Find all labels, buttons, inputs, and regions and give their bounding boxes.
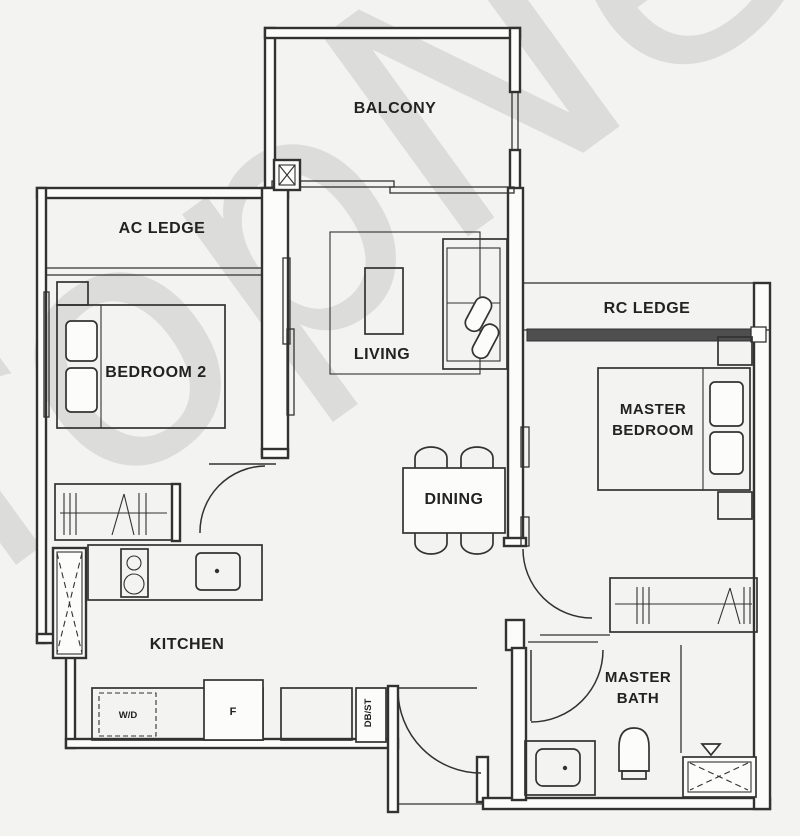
balcony-right-wall-upper [510,28,520,92]
dining-chair-bottom-2 [461,533,493,554]
balcony-label: BALCONY [354,100,437,117]
dining-chair-top-1 [415,447,447,468]
master-pillow-1 [710,382,743,426]
dining-chair-bottom-1 [415,533,447,554]
floor-plan-svg: PropNex [0,0,800,836]
rc-ledge-label: RC LEDGE [604,300,691,317]
master-side-table-bottom [718,492,752,519]
wardrobe2-stub-wall [172,484,180,541]
toilet-icon [619,728,649,771]
ac-ledge-top-wall [37,188,288,198]
kitchen-sink-drain-icon [215,569,219,573]
bath-sink-drain-icon [563,766,567,770]
shower-head-icon [702,744,720,755]
master-window-end-box [751,327,766,342]
bedroom2-pillow-2 [66,368,97,412]
master-bath-label-line1: MASTER [605,669,671,686]
ac-ledge-label: AC LEDGE [119,220,206,237]
bedroom2-label: BEDROOM 2 [105,364,206,381]
fridge-label: F [230,706,237,718]
master-bedroom-label-line1: MASTER [620,401,686,418]
bedroom2-living-wall [262,188,288,456]
kitchen-counter-bottom-right [281,688,352,740]
left-wall-upper [37,188,46,643]
master-pillow-2 [710,432,743,474]
toilet-base [622,771,646,779]
entry-right-pier [477,757,488,802]
master-bath-door-arc [531,650,603,722]
bath-sink [536,749,580,786]
master-door-cap [504,538,526,546]
kitchen-label: KITCHEN [150,636,225,653]
dining-chair-top-2 [461,447,493,468]
balcony-right-wall-lower [510,150,520,192]
db-st-label: DB/ST [363,699,374,728]
right-wall [754,283,770,809]
entrance-door-arc [398,690,481,773]
living-master-wall [508,188,523,545]
balcony-top-wall [265,28,520,38]
master-bath-fixtures [525,728,756,797]
bedroom2-door-lintel [262,449,288,458]
living-label: LIVING [354,346,410,363]
washer-dryer-label: W/D [119,710,138,721]
master-bedroom-door-arc [523,549,592,618]
entry-side-wall [388,686,398,812]
bath-slide-track [528,635,610,642]
floor-plan-page: PropNex [0,0,800,836]
master-hanger-icons [637,587,750,624]
bath-pier [506,620,524,650]
bath-left-wall [512,648,526,800]
master-bedroom-label-line2: BEDROOM [612,422,694,439]
master-bath-label-line2: BATH [617,690,660,707]
dining-label: DINING [425,491,484,508]
bedroom2-pillow-1 [66,321,97,361]
master-bedroom-furniture [598,337,757,632]
